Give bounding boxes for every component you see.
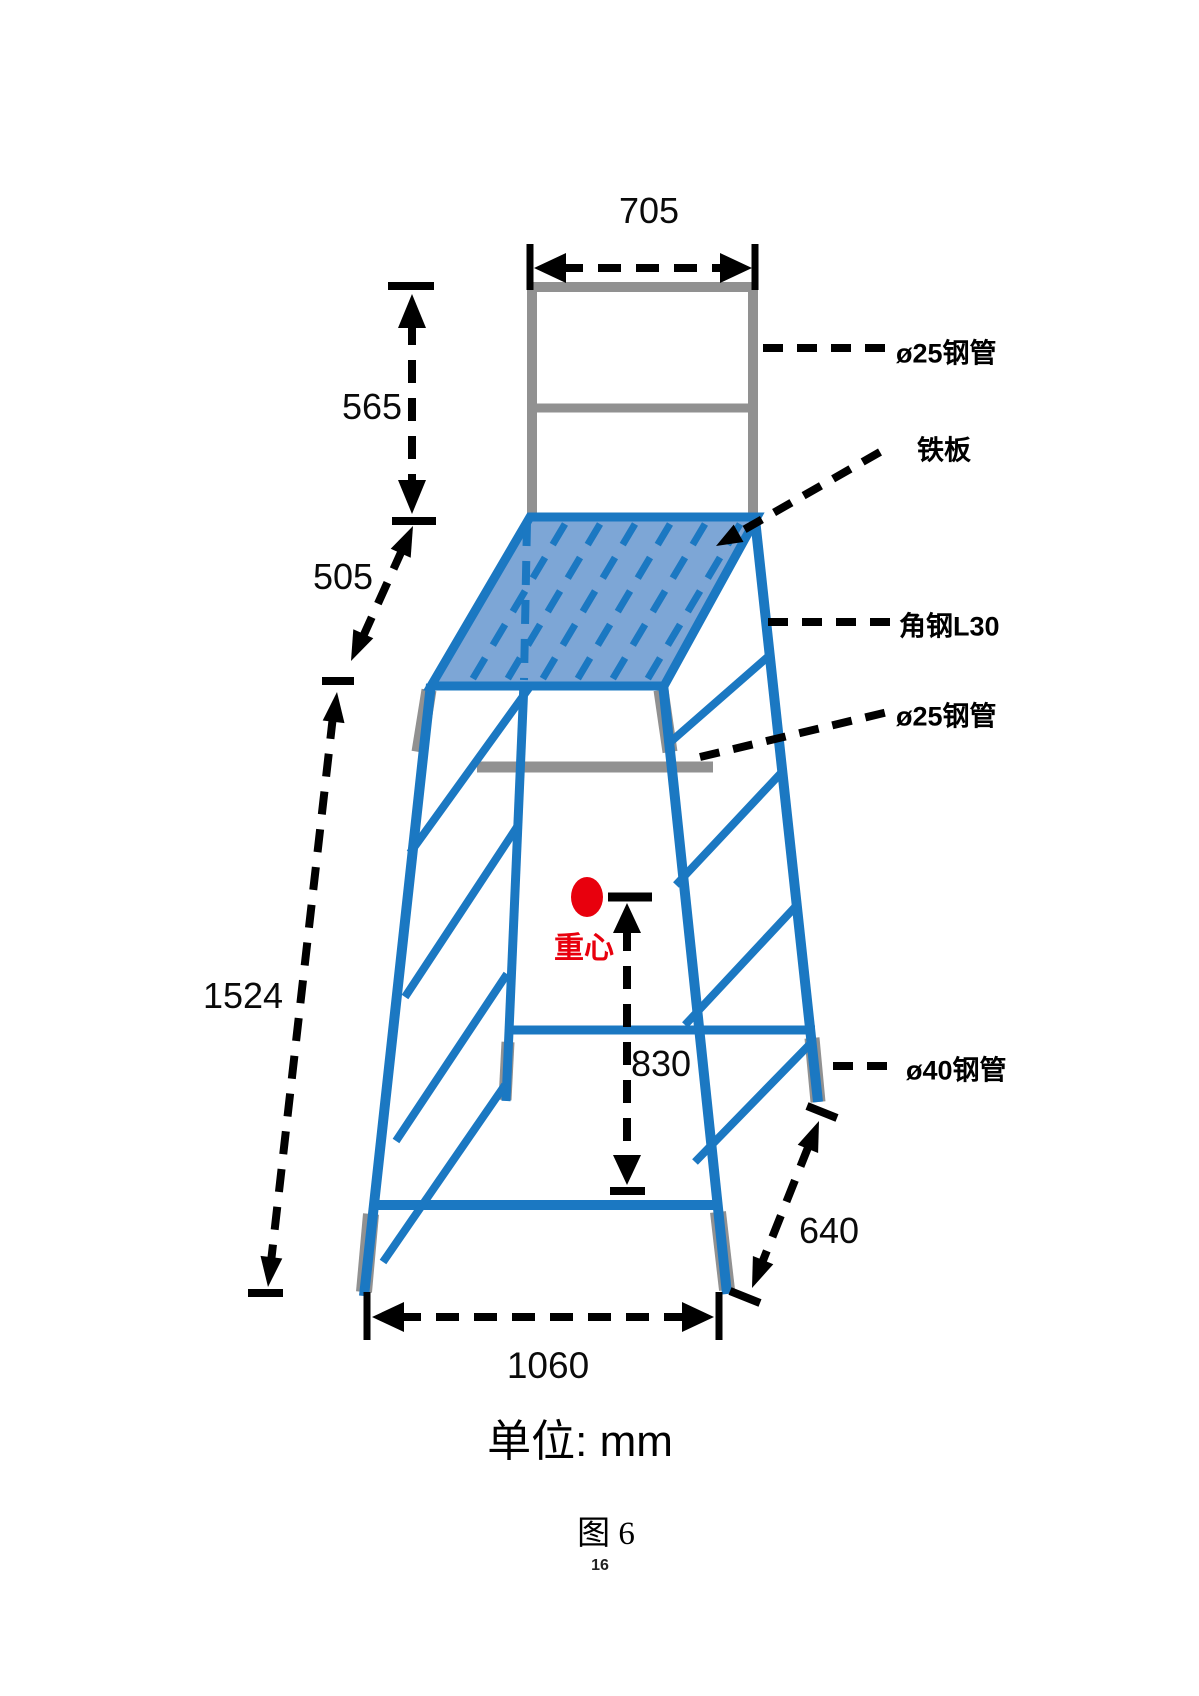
right-brace [695, 1042, 812, 1162]
dim-label-base-width: 1060 [507, 1345, 589, 1387]
dim-label-top-width: 705 [619, 190, 679, 232]
arrowhead [798, 1121, 819, 1153]
arrowhead [351, 629, 373, 661]
part-label-plate: 铁板 [917, 429, 971, 468]
left-brace [383, 1085, 505, 1262]
leader-middle-pipe [700, 712, 888, 757]
center-of-gravity-label: 重心 [554, 923, 614, 967]
arrowhead [682, 1302, 714, 1332]
arrowhead [398, 480, 426, 514]
part-label-middle-pipe: ø25钢管 [896, 695, 997, 734]
arrowhead [323, 692, 345, 723]
rear-right-leg [755, 519, 818, 1102]
figure-page: 705 565 505 1524 830 640 1060 ø25钢管 铁板 角… [0, 0, 1199, 1696]
right-brace [667, 655, 770, 745]
arrowhead [534, 253, 566, 283]
arrowhead [613, 1155, 641, 1185]
rear-left-leg [506, 683, 524, 1101]
part-label-top-rail-pipe: ø25钢管 [896, 332, 997, 371]
left-brace [396, 974, 507, 1141]
arrowhead [398, 294, 426, 328]
dim-label-overall-height: 1524 [203, 975, 283, 1017]
right-brace [676, 772, 782, 885]
arrowhead [391, 526, 413, 558]
arrowhead [372, 1302, 404, 1332]
arrowhead [613, 903, 641, 933]
dim-tick [807, 1106, 837, 1118]
unit-note: 单位: mm [487, 1405, 673, 1469]
guard-rail [527, 287, 758, 517]
figure-caption: 图 6 [577, 1506, 635, 1554]
dim-label-base-depth: 640 [799, 1210, 859, 1252]
platform [431, 517, 757, 686]
hidden-rear-leg-dashed [524, 522, 527, 680]
left-brace [405, 827, 517, 997]
dim-tick [730, 1291, 760, 1303]
center-of-gravity-dot [571, 877, 603, 917]
part-label-foot-pipe: ø40钢管 [906, 1049, 1007, 1088]
arrowhead [720, 253, 752, 283]
page-number: 16 [591, 1557, 609, 1575]
right-brace [685, 905, 797, 1025]
arrowhead [752, 1256, 773, 1288]
arrowhead [261, 1256, 283, 1287]
dim-label-platform-drop: 505 [313, 556, 373, 598]
dim-label-cg-height: 830 [631, 1043, 691, 1085]
dim-label-rail-height: 565 [342, 386, 402, 428]
part-label-angle-steel: 角钢L30 [899, 605, 1000, 644]
